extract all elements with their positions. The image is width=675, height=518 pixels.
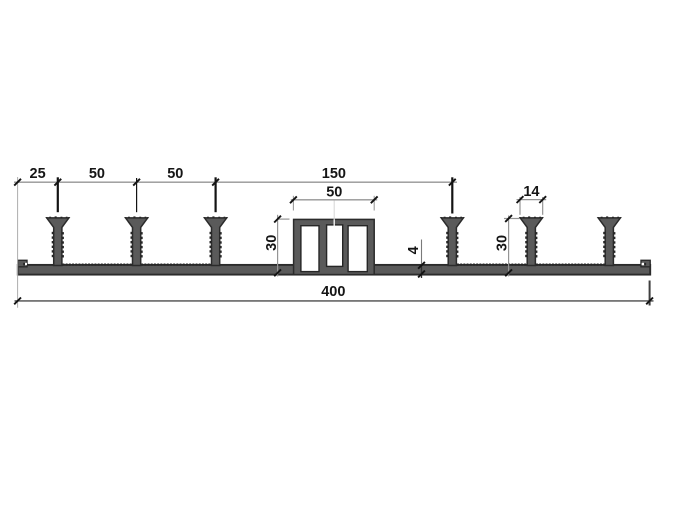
svg-text:25: 25	[30, 166, 46, 182]
svg-text:150: 150	[322, 166, 346, 182]
svg-text:400: 400	[321, 284, 345, 300]
svg-text:50: 50	[167, 166, 183, 182]
svg-text:30: 30	[494, 235, 510, 251]
svg-text:50: 50	[89, 166, 105, 182]
svg-text:50: 50	[326, 184, 342, 200]
svg-text:4: 4	[406, 246, 422, 254]
svg-text:30: 30	[264, 235, 280, 251]
svg-text:14: 14	[523, 184, 539, 200]
